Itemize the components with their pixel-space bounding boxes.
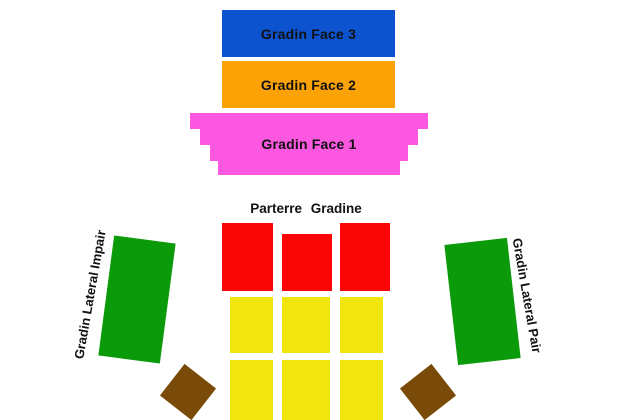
gradine-yellow-block-6[interactable] bbox=[340, 360, 383, 420]
section-gradin-face-3[interactable]: Gradin Face 3 bbox=[222, 10, 395, 57]
seating-map: Gradin Face 3 Gradin Face 2 Gradin Face … bbox=[0, 0, 620, 420]
corner-block-right[interactable] bbox=[400, 364, 456, 420]
gradine-yellow-block-1[interactable] bbox=[230, 297, 273, 353]
section-gradin-lateral-pair[interactable] bbox=[444, 238, 520, 365]
gradine-yellow-block-4[interactable] bbox=[230, 360, 273, 420]
section-gradin-face-2[interactable]: Gradin Face 2 bbox=[222, 61, 395, 108]
parterre-red-block-2[interactable] bbox=[282, 234, 332, 291]
section-gradin-face-1[interactable]: Gradin Face 1 bbox=[190, 113, 428, 175]
label-parterre-gradine: Parterre Gradine bbox=[226, 201, 386, 216]
gradine-yellow-block-3[interactable] bbox=[340, 297, 383, 353]
corner-block-left[interactable] bbox=[160, 364, 216, 420]
gradine-yellow-block-2[interactable] bbox=[282, 297, 330, 353]
section-gradin-face-2-label: Gradin Face 2 bbox=[261, 77, 356, 93]
section-gradin-lateral-impair[interactable] bbox=[98, 235, 175, 363]
parterre-red-block-1[interactable] bbox=[222, 223, 273, 291]
parterre-red-block-3[interactable] bbox=[340, 223, 390, 291]
section-gradin-face-1-label: Gradin Face 1 bbox=[261, 136, 356, 152]
section-gradin-face-3-label: Gradin Face 3 bbox=[261, 26, 356, 42]
gradine-yellow-block-5[interactable] bbox=[282, 360, 330, 420]
